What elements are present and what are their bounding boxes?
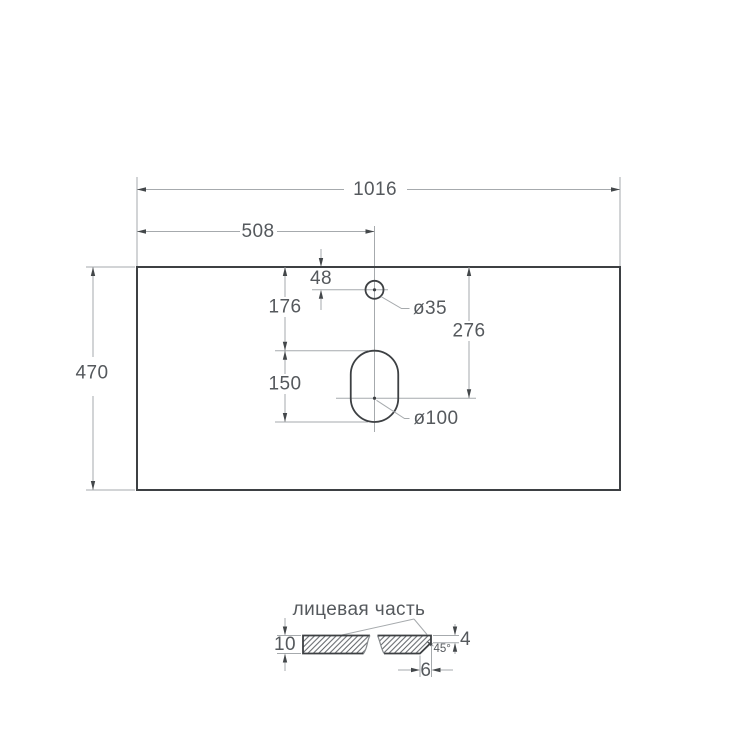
- dim-drain-center-offset-label: 276: [453, 321, 486, 342]
- technical-drawing-canvas: 1016 508 470 48: [0, 0, 750, 750]
- dim-faucet-edge-offset-label: 48: [310, 268, 332, 289]
- dim-overall-width: 1016: [137, 179, 620, 200]
- countertop-outline: [137, 267, 620, 490]
- center-lines: [312, 226, 476, 432]
- technical-drawing-page: 1016 508 470 48: [0, 0, 750, 750]
- dim-slab-thickness-label: 10: [274, 634, 296, 655]
- extension-lines: [86, 177, 620, 490]
- dim-slot-top-offset: 176: [269, 267, 302, 351]
- face-label-group: лицевая часть: [293, 599, 427, 635]
- drain-hole-center: [373, 397, 376, 400]
- plan-view: 1016 508 470 48: [76, 177, 620, 490]
- dim-slot-length: 150: [269, 351, 302, 422]
- dim-faucet-center-offset-label: 508: [242, 221, 275, 242]
- dim-overall-depth: 470: [76, 267, 109, 490]
- faucet-hole-callout: ø35: [381, 297, 447, 320]
- dim-overall-width-label: 1016: [353, 179, 397, 200]
- face-side-label: лицевая часть: [293, 599, 426, 620]
- faucet-diameter-label: ø35: [413, 298, 447, 319]
- dim-slab-thickness: 10: [274, 618, 301, 671]
- chamfer-angle-group: 45°: [427, 641, 451, 655]
- section-slab-left: [303, 636, 370, 654]
- dim-faucet-edge-offset: 48: [310, 249, 332, 310]
- dim-overall-depth-label: 470: [76, 363, 109, 384]
- face-label-leader: [414, 619, 427, 635]
- chamfer-angle-label: 45°: [434, 643, 451, 655]
- dim-faucet-center-offset: 508: [137, 221, 375, 242]
- faucet-hole-center: [373, 288, 376, 291]
- dim-drain-center-offset: 276: [453, 267, 486, 398]
- dim-chamfer-width-label: 6: [420, 660, 431, 681]
- section-slab-right: [378, 636, 432, 654]
- drain-diameter-label: ø100: [414, 408, 459, 429]
- dim-slot-top-offset-label: 176: [269, 297, 302, 318]
- section-view: лицевая часть 10: [274, 599, 471, 681]
- face-label-leader: [342, 619, 414, 635]
- dim-slot-length-label: 150: [269, 374, 302, 395]
- drain-hole-callout: ø100: [377, 400, 459, 429]
- dim-front-edge-height-label: 4: [460, 629, 471, 650]
